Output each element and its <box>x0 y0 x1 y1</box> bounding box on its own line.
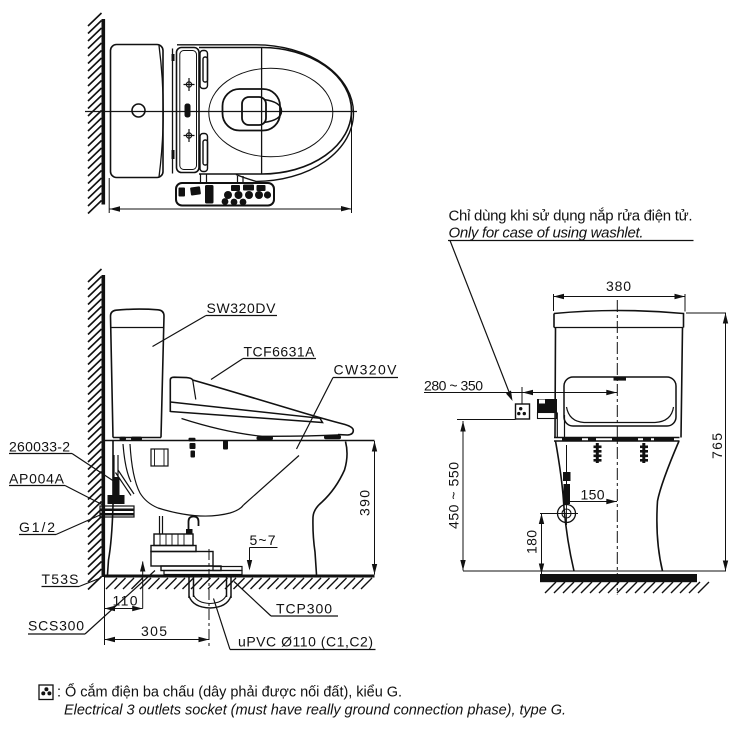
svg-text:150: 150 <box>581 487 605 503</box>
svg-text:765: 765 <box>709 433 725 459</box>
svg-text:Chỉ dùng khi sử dụng nắp rửa đ: Chỉ dùng khi sử dụng nắp rửa điện tử. <box>449 208 693 225</box>
svg-text:110: 110 <box>113 593 138 609</box>
svg-text:260033-2: 260033-2 <box>9 439 70 455</box>
svg-text:TCP300: TCP300 <box>276 601 332 617</box>
svg-text:SCS300: SCS300 <box>28 618 84 634</box>
svg-text:380: 380 <box>606 278 631 294</box>
svg-text:450 ~ 550: 450 ~ 550 <box>446 462 462 529</box>
svg-text:T53S: T53S <box>42 571 79 587</box>
svg-text:Only for case of using washlet: Only for case of using washlet. <box>449 225 644 242</box>
svg-text:180: 180 <box>524 530 540 554</box>
svg-text:Ổ cắm điện ba chấu (dây phải đ: Ổ cắm điện ba chấu (dây phải được nối đấ… <box>65 683 402 701</box>
svg-text:SW320DV: SW320DV <box>207 300 277 316</box>
svg-text:390: 390 <box>357 490 373 516</box>
svg-text:CW320V: CW320V <box>334 362 398 378</box>
svg-text:AP004A: AP004A <box>9 471 65 487</box>
svg-text:305: 305 <box>141 623 167 639</box>
svg-text:5~7: 5~7 <box>250 532 276 548</box>
svg-text:G1/2: G1/2 <box>19 519 55 535</box>
svg-text:TCF6631A: TCF6631A <box>244 344 316 360</box>
svg-text:280 ~ 350: 280 ~ 350 <box>424 378 483 394</box>
svg-text:uPVC Ø110 (C1,C2): uPVC Ø110 (C1,C2) <box>238 634 373 650</box>
svg-text::: : <box>57 685 61 701</box>
svg-text:Electrical 3 outlets socket (m: Electrical 3 outlets socket (must have r… <box>64 703 566 719</box>
